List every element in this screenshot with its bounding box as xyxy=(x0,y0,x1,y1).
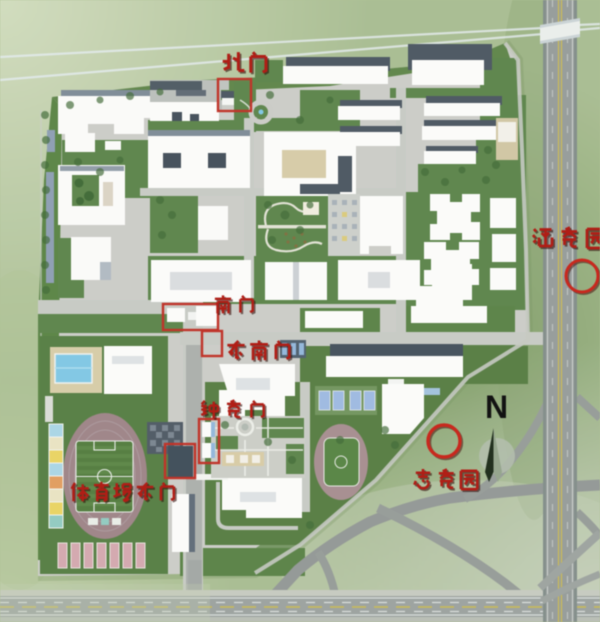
svg-text:N: N xyxy=(485,389,508,425)
